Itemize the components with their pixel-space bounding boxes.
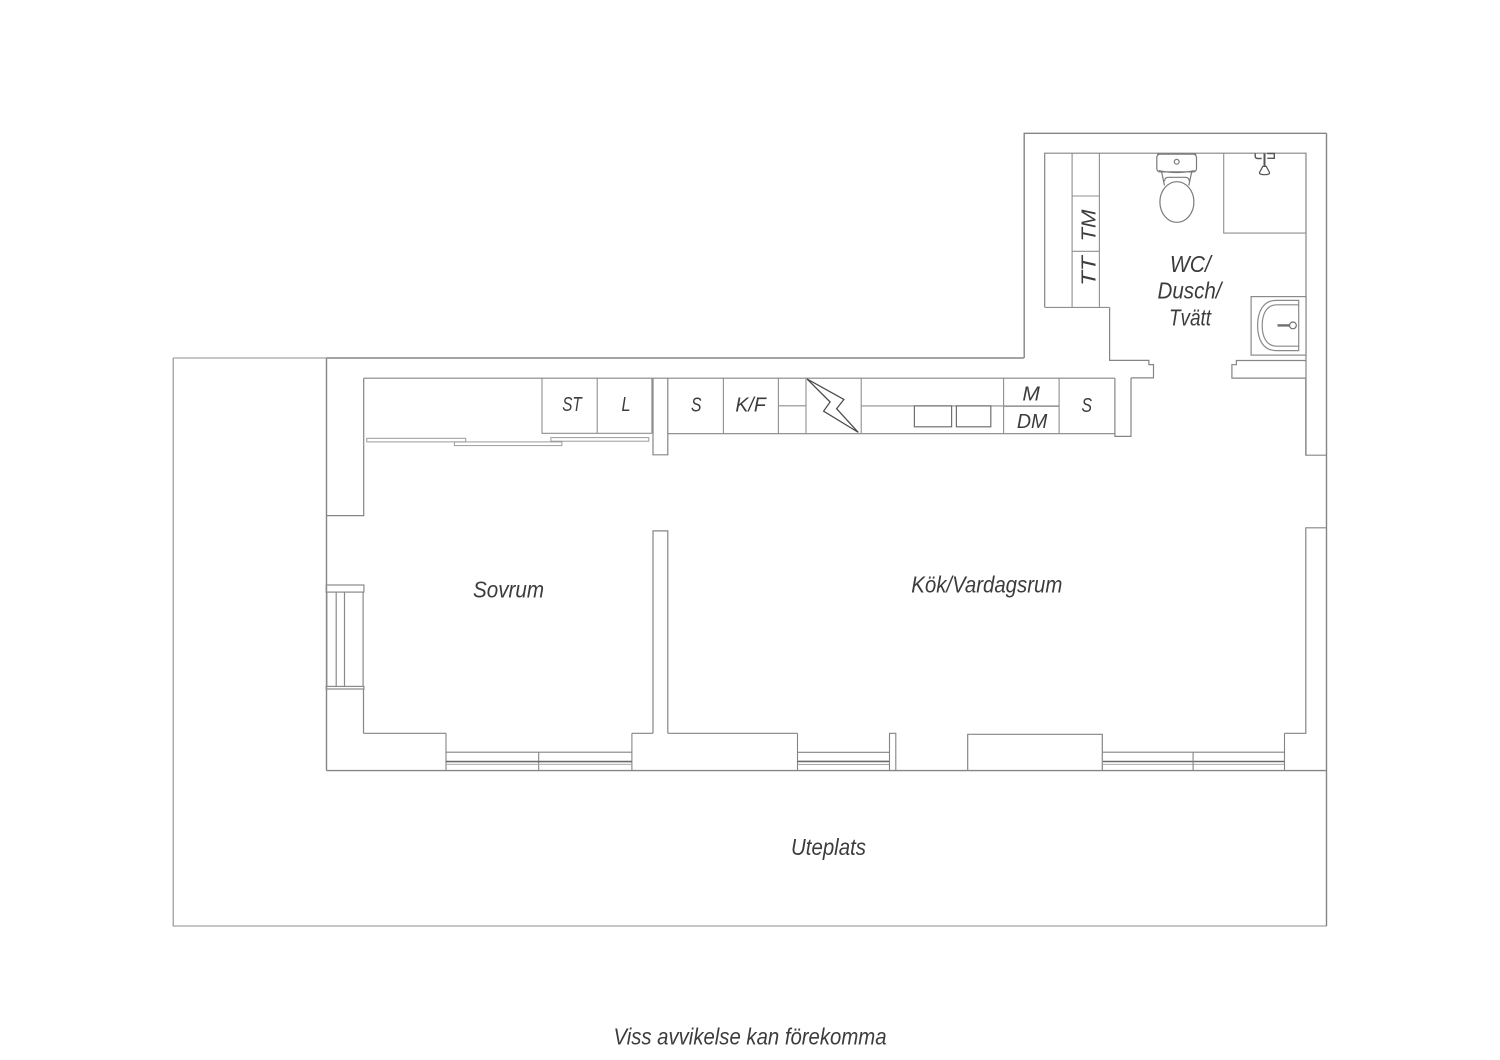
svg-text:ST: ST [562,394,583,416]
svg-text:K/F: K/F [735,395,767,417]
svg-text:Uteplats: Uteplats [791,834,866,860]
svg-text:L: L [622,394,631,416]
svg-text:Dusch/: Dusch/ [1158,278,1224,304]
svg-text:S: S [1081,395,1092,417]
svg-text:WC/: WC/ [1170,251,1213,277]
svg-text:TM: TM [1079,209,1101,241]
svg-text:TT: TT [1079,254,1101,286]
svg-text:Tvätt: Tvätt [1169,304,1212,330]
svg-text:Kök/Vardagsrum: Kök/Vardagsrum [911,571,1062,597]
svg-text:Viss avvikelse kan förekomma: Viss avvikelse kan förekomma [614,1024,887,1050]
svg-text:M: M [1022,383,1040,405]
svg-text:S: S [691,395,702,417]
svg-text:DM: DM [1017,411,1048,433]
svg-text:Sovrum: Sovrum [473,577,544,603]
